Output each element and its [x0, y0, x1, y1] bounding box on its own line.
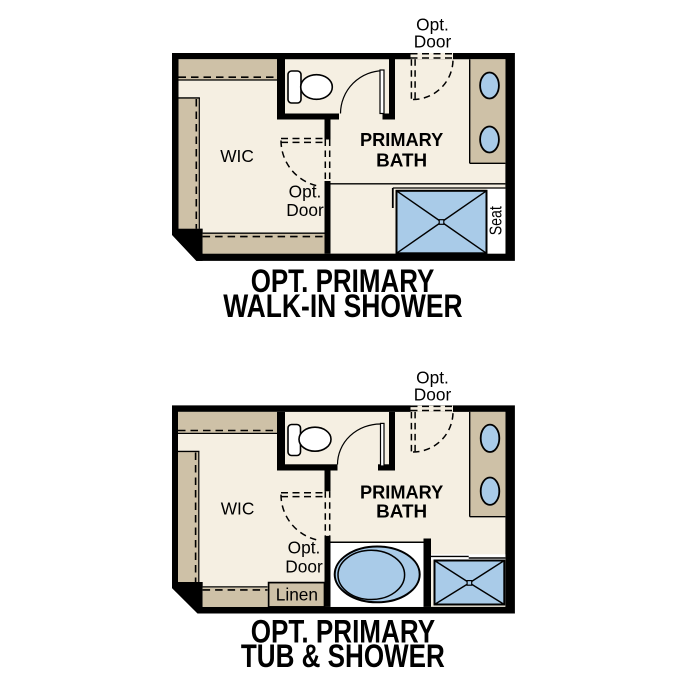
svg-text:WIC: WIC — [221, 499, 255, 519]
svg-text:BATH: BATH — [376, 501, 427, 522]
svg-text:PRIMARY: PRIMARY — [360, 482, 444, 503]
svg-text:Seat: Seat — [485, 206, 505, 235]
svg-text:Door: Door — [414, 384, 452, 404]
svg-text:Door: Door — [286, 200, 324, 220]
svg-text:Opt.: Opt. — [288, 538, 321, 558]
svg-text:Door: Door — [414, 32, 452, 52]
svg-text:Door: Door — [285, 556, 323, 576]
svg-text:Opt.: Opt. — [289, 181, 322, 201]
svg-text:BATH: BATH — [376, 150, 427, 171]
svg-text:WIC: WIC — [220, 146, 254, 166]
svg-text:TUB & SHOWER: TUB & SHOWER — [241, 638, 445, 674]
svg-text:WALK-IN SHOWER: WALK-IN SHOWER — [223, 288, 462, 324]
svg-text:PRIMARY: PRIMARY — [360, 129, 444, 150]
svg-text:Linen: Linen — [276, 584, 318, 604]
